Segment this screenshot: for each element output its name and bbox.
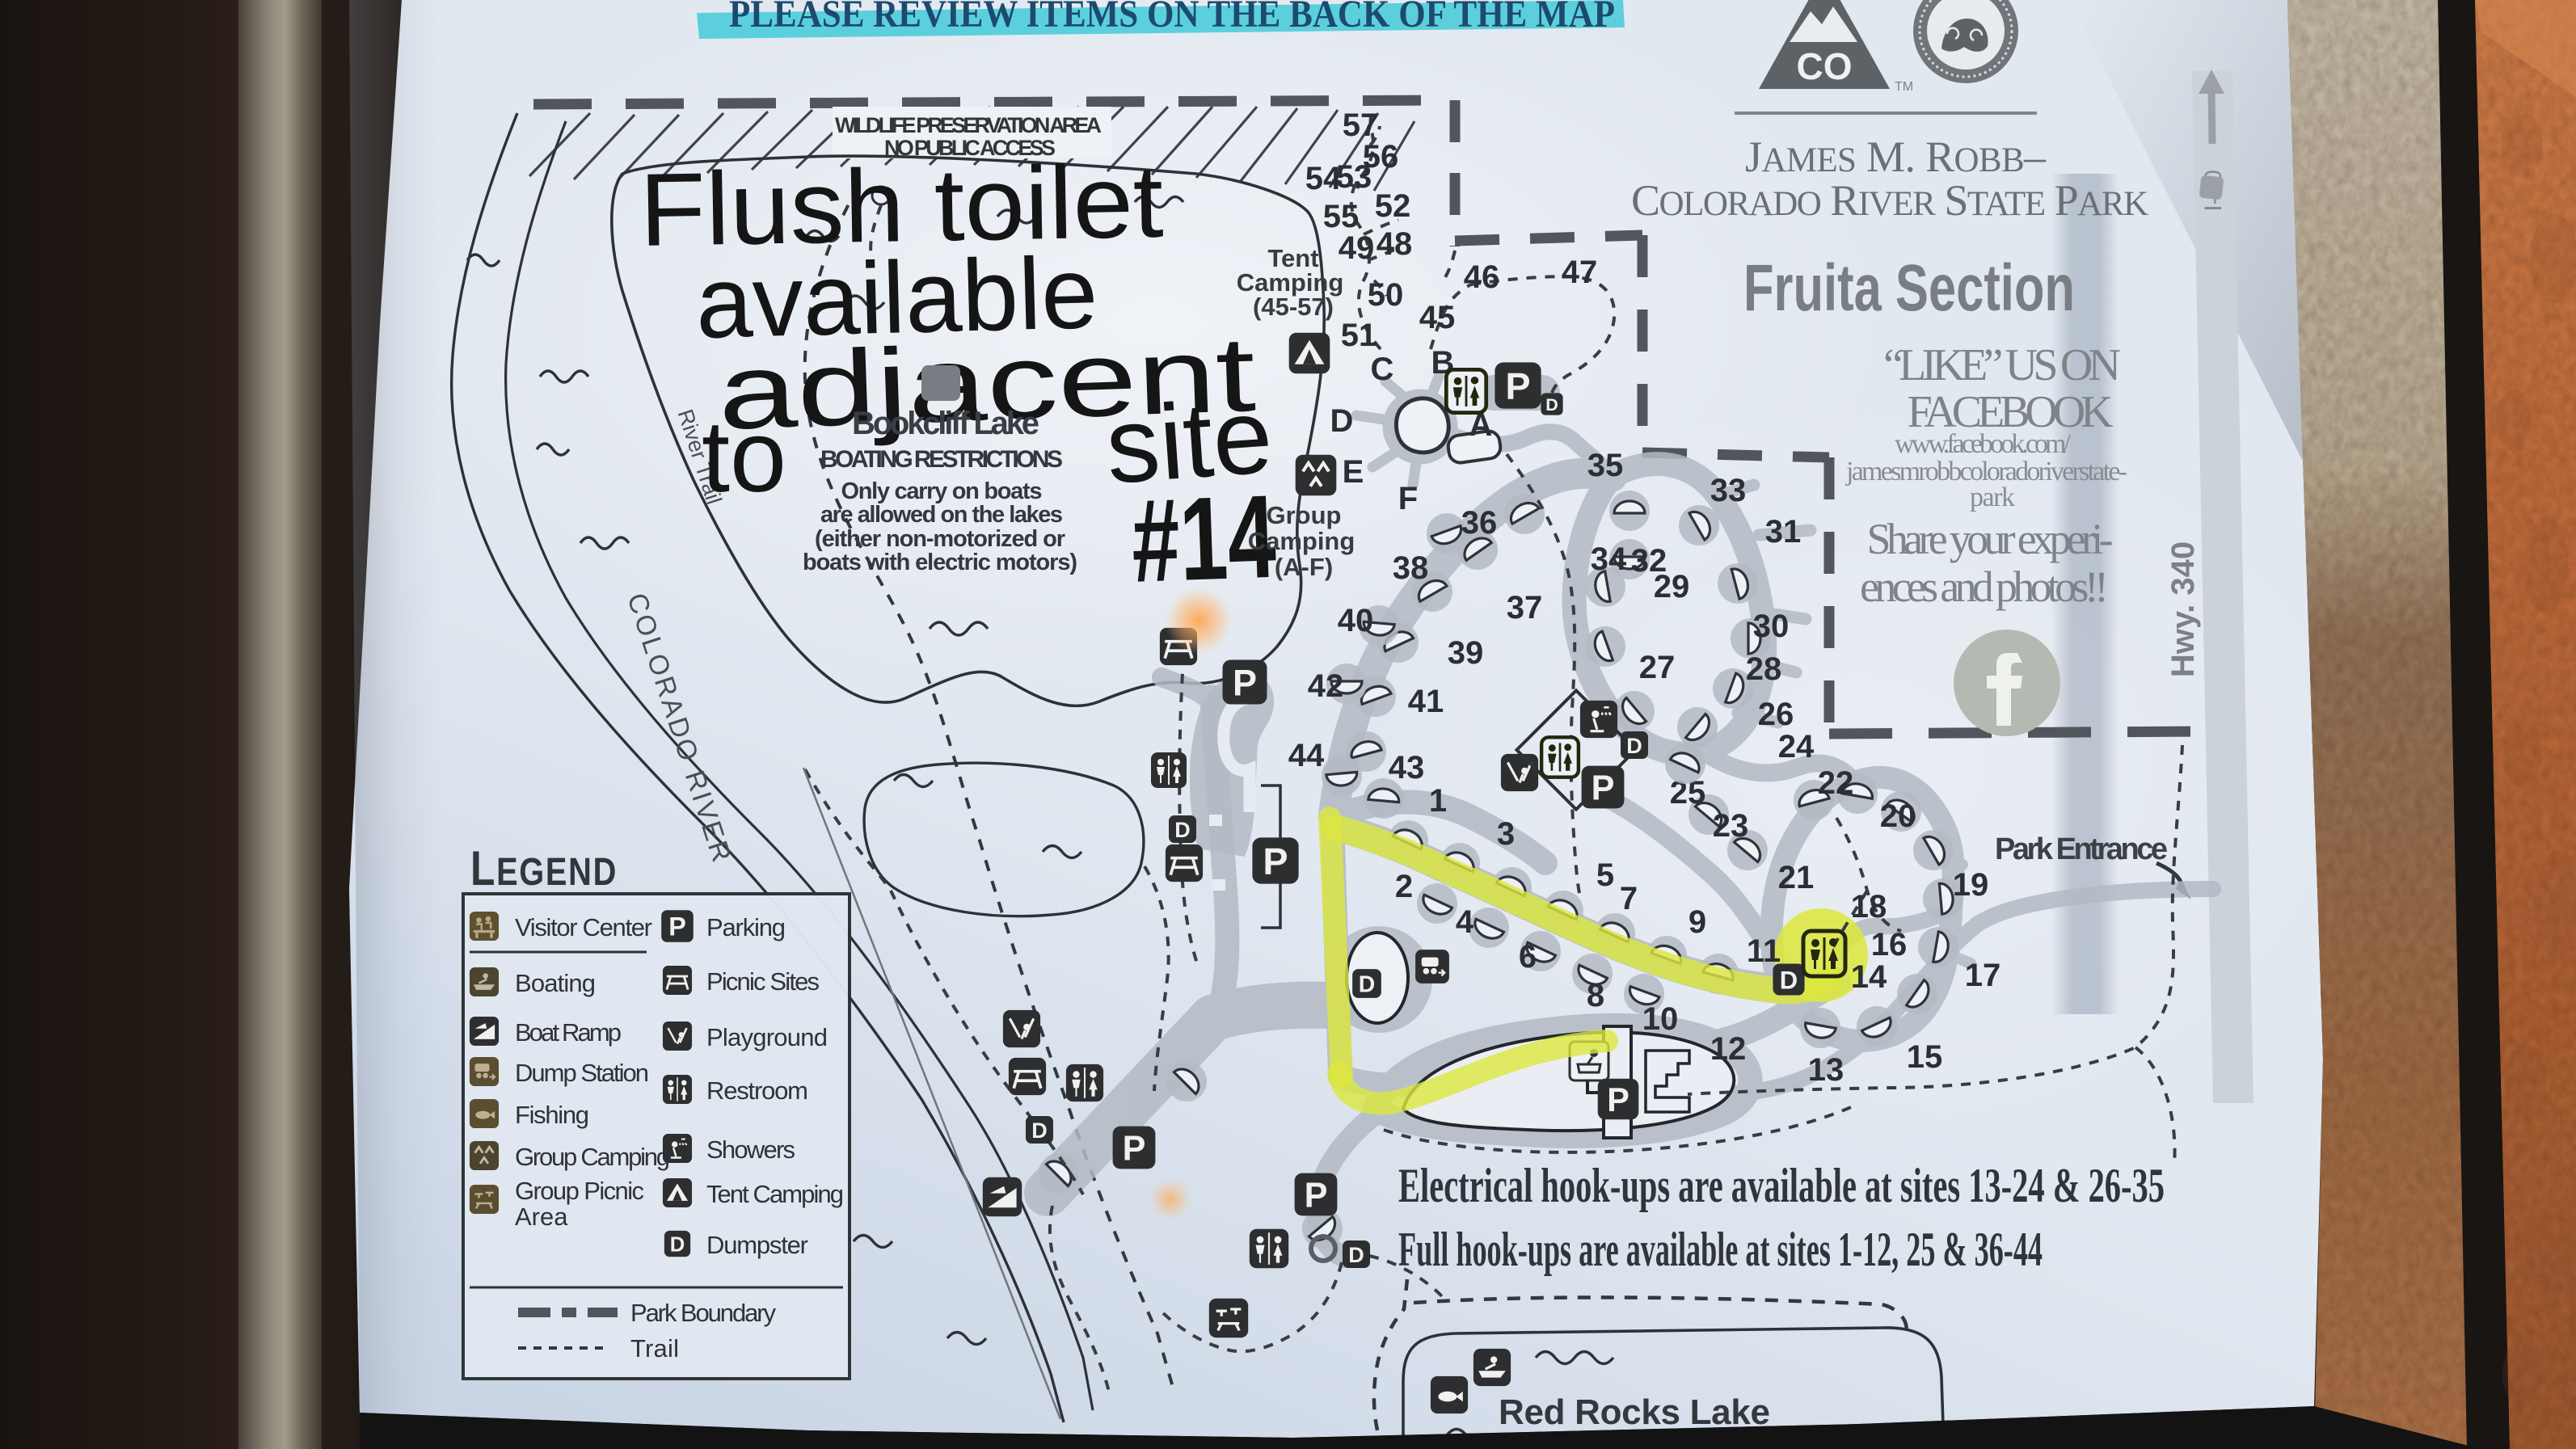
svg-text:C: C: [1371, 352, 1394, 387]
svg-text:9: 9: [1689, 904, 1706, 940]
svg-text:13: 13: [1808, 1052, 1845, 1088]
svg-text:Showers: Showers: [706, 1135, 795, 1164]
svg-text:38: 38: [1393, 550, 1429, 586]
svg-text:42: 42: [1308, 668, 1344, 704]
svg-text:Picnic Sites: Picnic Sites: [706, 967, 820, 996]
svg-text:10: 10: [1642, 1001, 1679, 1037]
svg-text:11: 11: [1747, 933, 1781, 969]
svg-text:4: 4: [1456, 904, 1474, 940]
svg-text:to: to: [702, 399, 786, 513]
svg-text:16: 16: [1871, 927, 1908, 962]
svg-text:Dumpster: Dumpster: [706, 1231, 808, 1259]
svg-text:29: 29: [1654, 569, 1690, 604]
svg-text:19: 19: [1953, 867, 1989, 903]
svg-text:Bookcliff Lake: Bookcliff Lake: [852, 406, 1039, 441]
svg-text:Fishing: Fishing: [515, 1101, 589, 1129]
svg-text:22: 22: [1818, 765, 1854, 801]
svg-text:41: 41: [1408, 684, 1444, 719]
svg-text:44: 44: [1288, 738, 1325, 773]
svg-text:37: 37: [1507, 590, 1543, 626]
svg-text:www.facebook.com/: www.facebook.com/: [1895, 429, 2072, 459]
svg-text:Only carry on boats: Only carry on boats: [841, 478, 1043, 504]
svg-text:33: 33: [1710, 473, 1747, 508]
svg-text:Camping: Camping: [1248, 527, 1355, 555]
svg-text:Restroom: Restroom: [706, 1076, 808, 1105]
svg-text:45: 45: [1419, 300, 1456, 335]
svg-text:21: 21: [1778, 860, 1815, 895]
svg-text:53: 53: [1336, 159, 1372, 195]
svg-text:Boating: Boating: [515, 969, 596, 997]
svg-text:57: 57: [1343, 107, 1379, 143]
svg-text:ences and photos!!: ences and photos!!: [1860, 562, 2109, 611]
svg-text:30: 30: [1753, 609, 1790, 644]
svg-text:48: 48: [1377, 226, 1413, 262]
svg-text:Group: Group: [1267, 501, 1342, 529]
svg-text:12: 12: [1710, 1031, 1747, 1067]
svg-text:PLEASE REVIEW ITEMS ON THE BAC: PLEASE REVIEW ITEMS ON THE BACK OF THE M…: [729, 0, 1615, 36]
svg-text:Share your experi-: Share your experi-: [1867, 515, 2114, 563]
svg-text:(either non-motorized or: (either non-motorized or: [815, 526, 1065, 552]
svg-text:Boat Ramp: Boat Ramp: [515, 1018, 622, 1047]
svg-text:CO: CO: [1797, 45, 1853, 87]
svg-text:31: 31: [1765, 514, 1802, 550]
svg-text:Visitor Center: Visitor Center: [515, 913, 652, 941]
svg-text:2: 2: [1395, 869, 1413, 904]
svg-text:Dump Station: Dump Station: [515, 1059, 649, 1087]
svg-text:Area: Area: [515, 1203, 568, 1231]
svg-text:Park Entrance: Park Entrance: [1995, 832, 2168, 866]
svg-text:43: 43: [1389, 750, 1425, 786]
svg-text:27: 27: [1639, 650, 1676, 685]
svg-text:34: 34: [1591, 541, 1627, 577]
svg-text:D: D: [1330, 403, 1354, 439]
svg-text:boats with electric motors): boats with electric motors): [803, 550, 1077, 575]
svg-text:52: 52: [1375, 188, 1411, 224]
svg-text:51: 51: [1341, 318, 1377, 353]
svg-text:park: park: [1970, 482, 2015, 512]
svg-text:Hwy. 340: Hwy. 340: [2165, 541, 2201, 677]
svg-text:Parking: Parking: [706, 913, 786, 941]
svg-text:7: 7: [1620, 881, 1638, 916]
svg-text:F: F: [1398, 481, 1418, 516]
svg-text:40: 40: [1338, 603, 1374, 638]
svg-text:49: 49: [1339, 230, 1375, 266]
svg-text:(45-57): (45-57): [1253, 293, 1334, 321]
svg-text:TM: TM: [1895, 80, 1913, 94]
svg-text:35: 35: [1587, 448, 1624, 483]
svg-text:Group Picnic: Group Picnic: [515, 1177, 644, 1205]
svg-text:1: 1: [1429, 783, 1447, 819]
svg-text:Trail: Trail: [630, 1334, 679, 1363]
svg-text:36: 36: [1461, 505, 1498, 541]
svg-text:26: 26: [1758, 697, 1794, 732]
svg-text:“LIKE” US ON: “LIKE” US ON: [1883, 340, 2121, 390]
svg-text:3: 3: [1497, 816, 1515, 852]
svg-text:20: 20: [1880, 798, 1916, 834]
svg-text:39: 39: [1448, 635, 1484, 671]
svg-text:Electrical hook-ups are availa: Electrical hook-ups are available at sit…: [1398, 1159, 2165, 1212]
svg-text:5: 5: [1596, 857, 1614, 893]
svg-text:15: 15: [1907, 1039, 1943, 1075]
svg-text:17: 17: [1965, 958, 2001, 993]
svg-text:18: 18: [1851, 889, 1887, 925]
svg-text:14: 14: [1851, 959, 1887, 995]
svg-text:46: 46: [1464, 259, 1500, 295]
svg-text:Tent Camping: Tent Camping: [706, 1180, 844, 1208]
svg-text:are allowed on the lakes: are allowed on the lakes: [820, 502, 1063, 528]
svg-text:28: 28: [1746, 651, 1782, 687]
svg-text:(A-F): (A-F): [1275, 553, 1333, 581]
svg-text:47: 47: [1562, 255, 1598, 290]
svg-text:55: 55: [1323, 199, 1360, 234]
svg-text:BOATING RESTRICTIONS: BOATING RESTRICTIONS: [820, 446, 1063, 473]
svg-text:Playground: Playground: [706, 1023, 828, 1051]
svg-text:23: 23: [1713, 808, 1749, 844]
svg-text:Fruita Section: Fruita Section: [1743, 251, 2075, 325]
svg-text:WILDLIFE PRESERVATION AREA: WILDLIFE PRESERVATION AREA: [835, 113, 1102, 137]
svg-text:Park Boundary: Park Boundary: [630, 1299, 777, 1327]
svg-text:8: 8: [1587, 978, 1604, 1013]
svg-text:E: E: [1343, 454, 1364, 490]
svg-text:6: 6: [1519, 939, 1537, 975]
svg-text:50: 50: [1368, 277, 1404, 313]
svg-text:24: 24: [1778, 729, 1815, 765]
svg-text:Red Rocks Lake: Red Rocks Lake: [1499, 1392, 1770, 1432]
svg-text:Group Camping: Group Camping: [515, 1143, 670, 1171]
svg-text:Full hook-ups are available at: Full hook-ups are available at sites 1-1…: [1398, 1223, 2043, 1276]
